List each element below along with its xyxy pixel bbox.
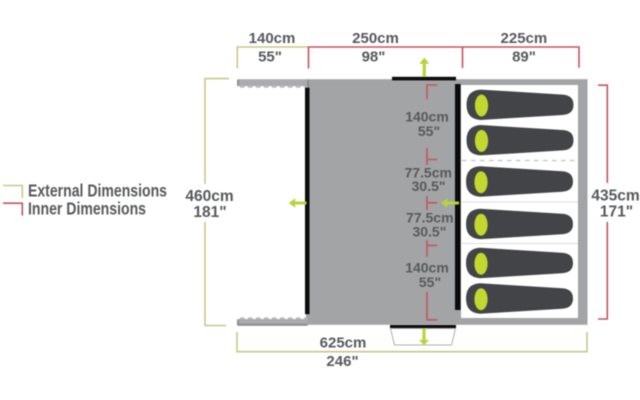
svg-text:625cm: 625cm [320,335,367,352]
svg-text:171": 171" [600,204,633,221]
svg-text:225cm: 225cm [501,30,548,47]
svg-text:55": 55" [258,49,282,66]
svg-text:250cm: 250cm [352,30,399,47]
svg-text:30.5": 30.5" [412,223,446,239]
svg-text:30.5": 30.5" [412,178,446,194]
svg-text:98": 98" [362,49,386,66]
svg-text:External Dimensions: External Dimensions [28,181,167,201]
svg-text:55": 55" [418,123,440,139]
svg-text:181": 181" [193,204,226,221]
svg-text:Inner Dimensions: Inner Dimensions [28,199,146,219]
svg-text:140cm: 140cm [249,30,296,47]
svg-text:55": 55" [419,274,441,290]
svg-text:89": 89" [512,49,536,66]
svg-text:246": 246" [326,353,358,370]
svg-text:435cm: 435cm [591,187,639,204]
svg-text:460cm: 460cm [185,188,233,205]
